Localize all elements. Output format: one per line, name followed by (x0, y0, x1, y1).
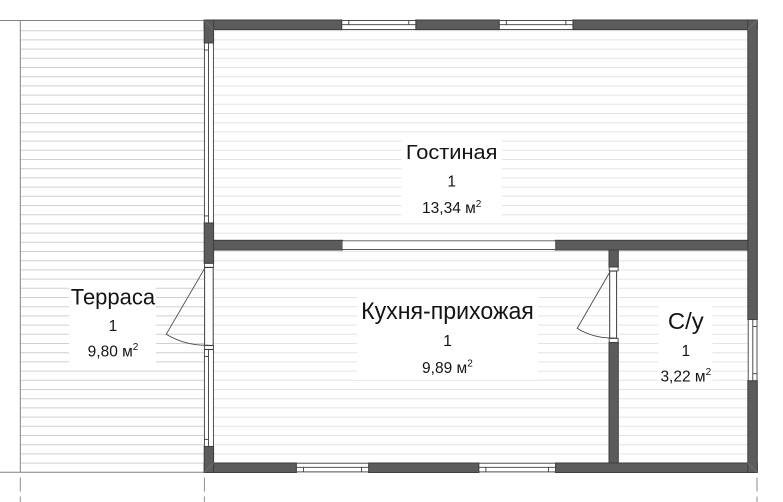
svg-text:С/у: С/у (668, 308, 704, 334)
svg-text:9,89 м2: 9,89 м2 (422, 359, 473, 377)
svg-text:13,34 м2: 13,34 м2 (422, 199, 482, 217)
svg-text:9,80 м2: 9,80 м2 (88, 342, 139, 360)
svg-text:1: 1 (109, 318, 118, 335)
svg-text:Гостиная: Гостиная (406, 141, 498, 164)
svg-text:1: 1 (681, 343, 690, 360)
svg-text:1: 1 (443, 333, 452, 350)
svg-text:Кухня-прихожая: Кухня-прихожая (361, 298, 534, 325)
svg-text:Терраса: Терраса (71, 284, 156, 309)
svg-text:1: 1 (447, 174, 456, 191)
svg-text:3,22 м2: 3,22 м2 (660, 367, 711, 385)
